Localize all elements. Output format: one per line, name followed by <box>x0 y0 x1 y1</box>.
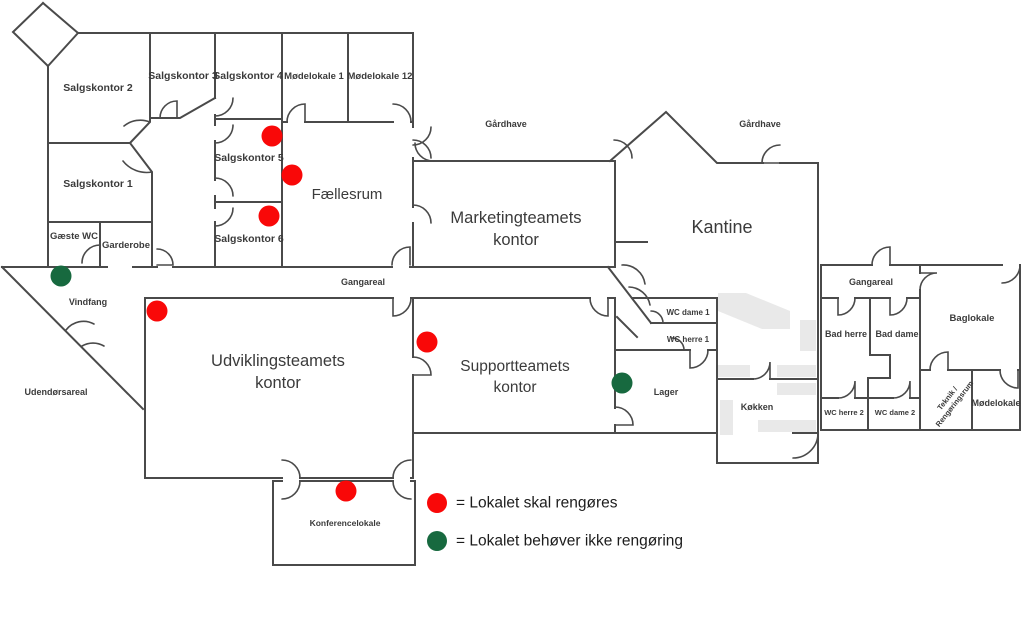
room-label-wc-dame-2: WC dame 2 <box>875 408 915 417</box>
room-label-vindfang: Vindfang <box>69 297 107 307</box>
status-dots <box>51 126 633 502</box>
room-label-wc-herre-1: WC herre 1 <box>667 335 710 344</box>
legend: = Lokalet skal rengøres= Lokalet behøver… <box>427 493 683 551</box>
room-label-gaardhave-2: Gårdhave <box>739 119 781 129</box>
floorplan-svg: Salgskontor 2Salgskontor 3Salgskontor 4M… <box>0 0 1024 644</box>
kantine-fixtures <box>718 293 816 435</box>
room-label-supportteamets-kontor: Supportteametskontor <box>460 358 570 396</box>
status-dot-red-konferencelokale <box>336 481 357 502</box>
status-dot-green-lager <box>612 373 633 394</box>
room-label-kokken: Køkken <box>741 402 774 412</box>
room-label-garderobe: Garderobe <box>102 240 150 251</box>
room-label-gangareal-2: Gangareal <box>849 277 893 287</box>
status-dot-red-supportteamets-kontor <box>417 332 438 353</box>
legend-label-green: = Lokalet behøver ikke rengøring <box>456 533 683 550</box>
room-label-salgskontor-1: Salgskontor 1 <box>63 178 133 190</box>
room-label-marketingteamets-kontor: Marketingteametskontor <box>450 209 581 249</box>
room-label-salgskontor-6: Salgskontor 6 <box>214 233 284 245</box>
room-label-gaardhave-1: Gårdhave <box>485 119 527 129</box>
room-label-baglokale: Baglokale <box>950 313 995 324</box>
counter-shape <box>758 420 816 432</box>
room-label-salgskontor-5: Salgskontor 5 <box>214 152 284 164</box>
room-label-modelokale-12: Mødelokale 12 <box>348 71 413 82</box>
room-label-salgskontor-4: Salgskontor 4 <box>213 70 283 82</box>
counter-shape <box>718 365 750 377</box>
room-label-salgskontor-3: Salgskontor 3 <box>148 70 218 82</box>
room-label-teknik-rengoringsrum: Teknik /Rengøringsrum <box>926 373 975 428</box>
room-label-salgskontor-2: Salgskontor 2 <box>63 82 133 94</box>
room-label-bad-dame: Bad dame <box>875 329 918 339</box>
room-label-kantine: Kantine <box>691 217 752 237</box>
room-label-lager: Lager <box>654 387 679 397</box>
room-label-modelokale-annex: Mødelokale <box>971 398 1020 408</box>
status-dot-red-salgskontor-6 <box>259 206 280 227</box>
status-dot-red-faellesrum <box>282 165 303 186</box>
room-label-udviklingsteamets-kontor: Udviklingsteametskontor <box>211 352 345 392</box>
legend-dot-red <box>427 493 447 513</box>
room-label-gaeste-wc: Gæste WC <box>50 231 98 242</box>
room-label-modelokale-1: Mødelokale 1 <box>284 71 344 82</box>
status-dot-red-udviklingsteamets-kontor <box>147 301 168 322</box>
room-label-faellesrum: Fællesrum <box>312 186 383 203</box>
counter-shape <box>800 320 816 351</box>
floorplan-page: Salgskontor 2Salgskontor 3Salgskontor 4M… <box>0 0 1024 644</box>
room-label-wc-herre-2: WC herre 2 <box>824 408 864 417</box>
status-dot-green-vindfang <box>51 266 72 287</box>
counter-shape <box>777 383 816 395</box>
room-label-gangareal-1: Gangareal <box>341 277 385 287</box>
status-dot-red-salgskontor-5 <box>262 126 283 147</box>
room-label-udendorsareal: Udendørsareal <box>24 387 87 397</box>
staircase-shape <box>718 293 790 329</box>
room-label-bad-herre: Bad herre <box>825 329 867 339</box>
room-label-konferencelokale: Konferencelokale <box>310 518 381 528</box>
counter-shape <box>777 365 816 377</box>
room-label-wc-dame-1: WC dame 1 <box>666 308 710 317</box>
counter-shape <box>720 400 733 435</box>
legend-dot-green <box>427 531 447 551</box>
legend-label-red: = Lokalet skal rengøres <box>456 495 618 512</box>
